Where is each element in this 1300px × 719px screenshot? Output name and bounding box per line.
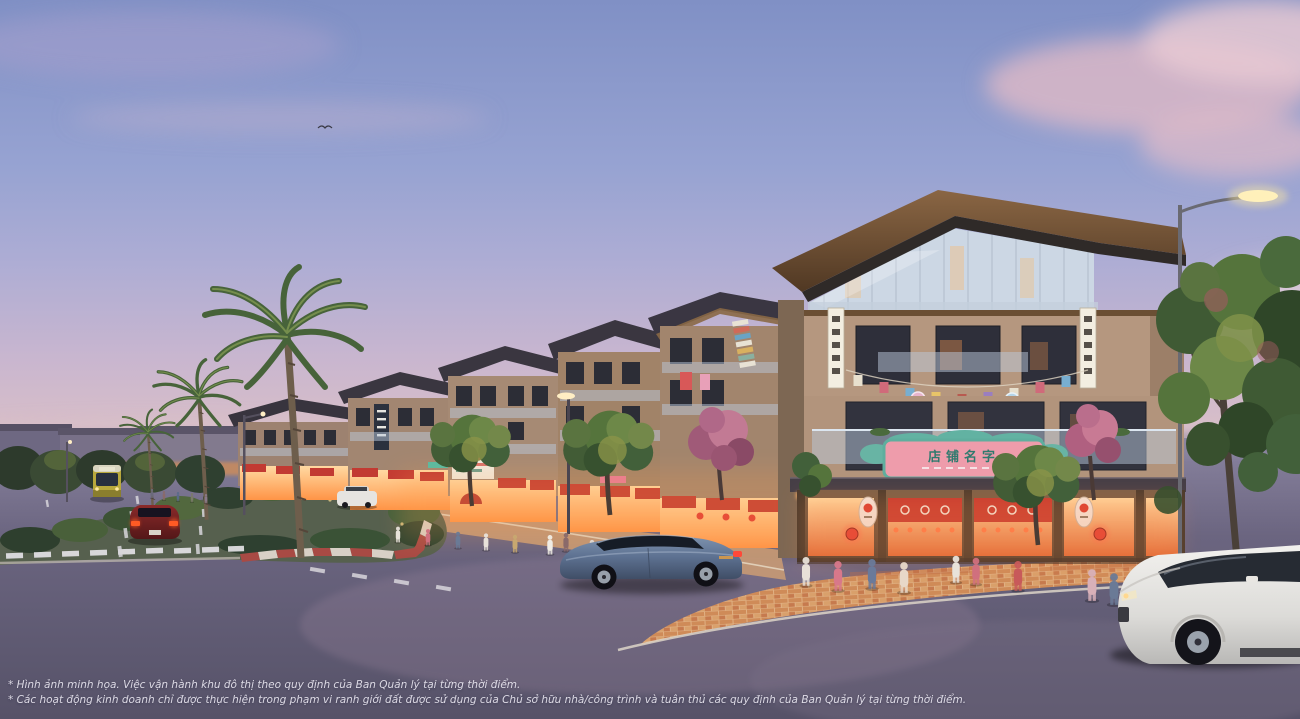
scene-rendering: 店铺名字: [0, 0, 1300, 719]
blue-sedan: [560, 535, 744, 594]
balcony-poster: [700, 374, 710, 390]
corner-shophouse: 店铺名字: [772, 190, 1186, 565]
storefront-glow: [400, 470, 800, 540]
disclaimer-line-2: * Các hoạt động kinh doanh chỉ được thực…: [8, 693, 1288, 708]
calligraphy-banner-left: [828, 308, 844, 388]
red-car: [128, 505, 182, 546]
disclaimer-text: * Hình ảnh minh họa. Việc vận hành khu đ…: [8, 678, 1288, 708]
rendering-canvas: 店铺名字: [0, 0, 1300, 719]
shop-sign-text: 店铺名字: [928, 449, 1000, 465]
ground-floor-storefront: [797, 490, 1185, 565]
balcony-poster: [680, 372, 692, 390]
disclaimer-line-1: * Hình ảnh minh họa. Việc vận hành khu đ…: [8, 678, 1288, 693]
third-floor-balcony: [878, 352, 1028, 372]
calligraphy-banner-right: [1080, 308, 1096, 388]
city-bus: [90, 465, 124, 503]
roof-terrace-rail: [808, 302, 1098, 311]
